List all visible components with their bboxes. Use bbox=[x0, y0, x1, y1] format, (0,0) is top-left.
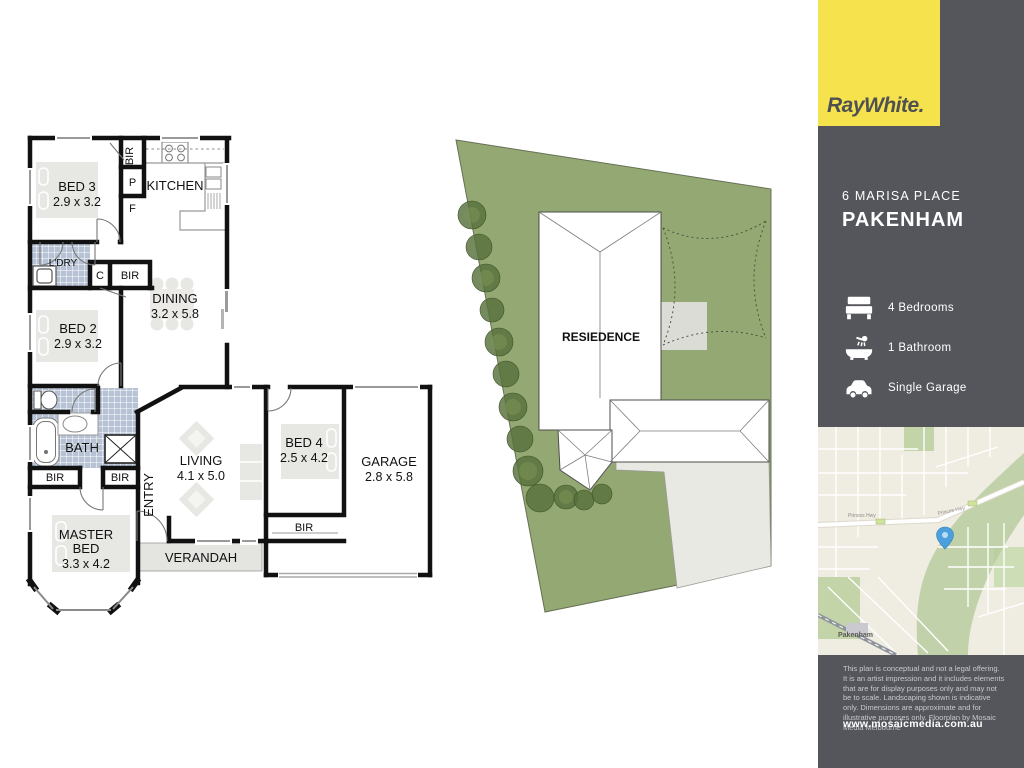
washing-machine bbox=[33, 266, 56, 286]
sliding-door bbox=[223, 289, 232, 329]
feature-bathrooms-label: 1 Bathroom bbox=[888, 342, 951, 354]
garage-dims: 2.8 x 5.8 bbox=[365, 470, 413, 484]
dining-label: DINING bbox=[152, 291, 198, 306]
feature-bedrooms-label: 4 Bedrooms bbox=[888, 302, 954, 314]
brand-block: RayWhite. bbox=[818, 0, 940, 126]
address-suburb: PAKENHAM bbox=[842, 209, 964, 232]
master-bir-left-label: BIR bbox=[46, 472, 64, 484]
website-text: www.mosaicmedia.com.au bbox=[843, 718, 983, 730]
entry-label: ENTRY bbox=[141, 473, 156, 517]
paved-square bbox=[660, 302, 707, 350]
fridge-label: F bbox=[129, 203, 136, 215]
dining-dims: 3.2 x 5.8 bbox=[151, 307, 199, 321]
bed4-label: BED 4 bbox=[285, 435, 323, 450]
master-label-2: BED bbox=[73, 541, 100, 556]
bed2-dims: 2.9 x 3.2 bbox=[54, 337, 102, 351]
bed3-label: BED 3 bbox=[58, 179, 96, 194]
kitchen-label: KITCHEN bbox=[146, 178, 203, 193]
town-label: Pakenham bbox=[838, 632, 873, 639]
feature-garage: Single Garage bbox=[844, 368, 967, 408]
flyer-page: RESIEDENCE bbox=[0, 0, 1024, 768]
bathtub bbox=[33, 418, 59, 466]
bath-icon bbox=[844, 335, 874, 361]
car-icon bbox=[844, 375, 874, 401]
residence-label: RESIEDENCE bbox=[562, 330, 640, 344]
cupboard-label: C bbox=[96, 270, 104, 282]
living-label: LIVING bbox=[180, 453, 223, 468]
furniture bbox=[36, 162, 339, 572]
dishwasher-hatch bbox=[208, 193, 220, 209]
verandah-label: VERANDAH bbox=[165, 550, 237, 565]
laundry-label: L'DRY bbox=[49, 258, 78, 269]
location-map: Princes Hwy Princes Hwy Pakenham bbox=[818, 427, 1024, 655]
toilet bbox=[34, 391, 57, 409]
bed3-dims: 2.9 x 3.2 bbox=[53, 195, 101, 209]
property-address: 6 MARISA PLACE PAKENHAM bbox=[842, 189, 964, 232]
master-label-1: MASTER bbox=[59, 527, 113, 542]
room-labels: BED 3 2.9 x 3.2 KITCHEN DINING 3.2 x 5.8… bbox=[46, 147, 417, 571]
bed4-dims: 2.5 x 4.2 bbox=[280, 451, 328, 465]
feature-list: 4 Bedrooms 1 Bathroom bbox=[844, 288, 967, 408]
sidebar-panel: RayWhite. 6 MARISA PLACE PAKENHAM 4 Bedr… bbox=[818, 0, 1024, 768]
vanity bbox=[58, 413, 98, 435]
feature-garage-label: Single Garage bbox=[888, 382, 967, 394]
highway-label-west: Princes Hwy bbox=[848, 513, 876, 519]
kitchen-sink bbox=[206, 167, 221, 189]
living-dims: 4.1 x 5.0 bbox=[177, 469, 225, 483]
bed3-bir-label: BIR bbox=[124, 147, 136, 165]
stove bbox=[162, 142, 188, 163]
master-bir-right-label: BIR bbox=[111, 472, 129, 484]
bath-label: BATH bbox=[65, 440, 99, 455]
sofa bbox=[240, 444, 262, 500]
map-canvas: Princes Hwy Princes Hwy Pakenham bbox=[818, 427, 1024, 655]
site-plan: RESIEDENCE bbox=[456, 140, 771, 612]
feature-bedrooms: 4 Bedrooms bbox=[844, 288, 967, 328]
floor-plan: BED 3 2.9 x 3.2 KITCHEN DINING 3.2 x 5.8… bbox=[26, 134, 430, 611]
master-dims: 3.3 x 4.2 bbox=[62, 557, 110, 571]
shower bbox=[105, 435, 136, 463]
feature-bathrooms: 1 Bathroom bbox=[844, 328, 967, 368]
bed2-label: BED 2 bbox=[59, 321, 97, 336]
pantry-label: P bbox=[129, 177, 136, 189]
bed4-bir-label: BIR bbox=[295, 522, 313, 534]
address-street: 6 MARISA PLACE bbox=[842, 189, 964, 203]
plan-canvas: RESIEDENCE bbox=[0, 0, 818, 768]
bed-icon bbox=[844, 295, 874, 321]
laundry-bir-label: BIR bbox=[121, 270, 139, 282]
garage-label: GARAGE bbox=[361, 454, 417, 469]
raywhite-logo: RayWhite. bbox=[827, 94, 924, 118]
